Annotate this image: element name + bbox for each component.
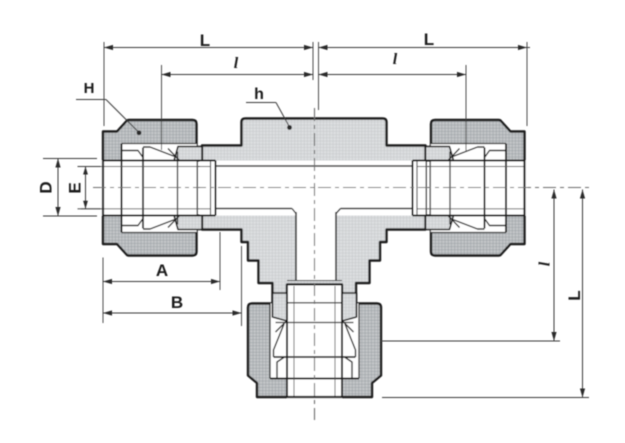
svg-text:E: E (66, 182, 85, 193)
svg-text:D: D (37, 181, 56, 193)
svg-text:L: L (424, 30, 434, 49)
svg-text:h: h (254, 86, 264, 103)
svg-text:B: B (171, 293, 183, 312)
svg-text:l: l (393, 51, 398, 68)
svg-text:H: H (84, 80, 95, 97)
svg-text:L: L (565, 290, 584, 300)
svg-text:A: A (156, 261, 168, 280)
svg-text:L: L (200, 31, 210, 50)
svg-text:l: l (537, 261, 554, 266)
svg-text:l: l (234, 55, 239, 72)
